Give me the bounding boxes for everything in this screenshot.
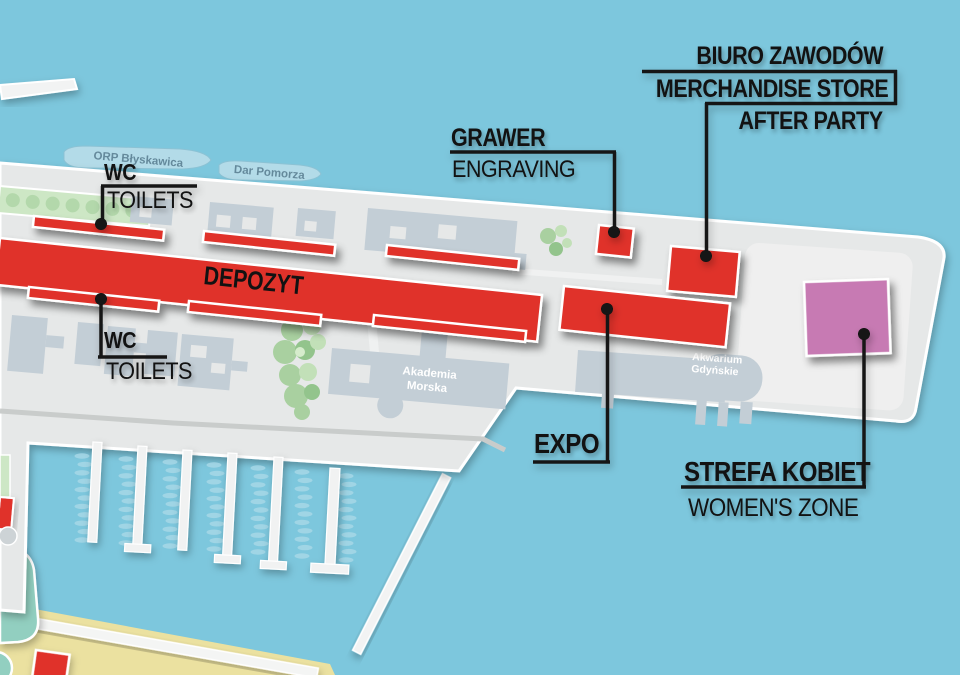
label-wc-bottom: WC bbox=[104, 329, 136, 352]
svg-text:Akwarium Gdyńskie: Akwarium Gdyńskie bbox=[691, 351, 746, 379]
strefa-kobiet-building bbox=[804, 279, 891, 356]
label-biuro-zawodow: BIURO ZAWODÓW bbox=[696, 44, 883, 69]
label-expo: EXPO bbox=[534, 430, 599, 458]
label-engraving: ENGRAVING bbox=[452, 158, 575, 182]
label-wc-top: WC bbox=[104, 161, 136, 184]
label-toilets-bottom: TOILETS bbox=[106, 360, 192, 384]
label-womens-zone: WOMEN'S ZONE bbox=[688, 496, 858, 521]
label-merchandise-store: MERCHANDISE STORE bbox=[656, 77, 888, 102]
label-toilets-top: TOILETS bbox=[107, 189, 193, 213]
label-strefa-kobiet: STREFA KOBIET bbox=[684, 458, 870, 486]
beach-red-block bbox=[32, 650, 69, 675]
label-after-party: AFTER PARTY bbox=[739, 109, 883, 134]
shore-red-block bbox=[0, 497, 14, 530]
event-map: ORP Błyskawica Dar Pomorza bbox=[0, 0, 960, 675]
label-grawer: GRAWER bbox=[451, 126, 545, 151]
